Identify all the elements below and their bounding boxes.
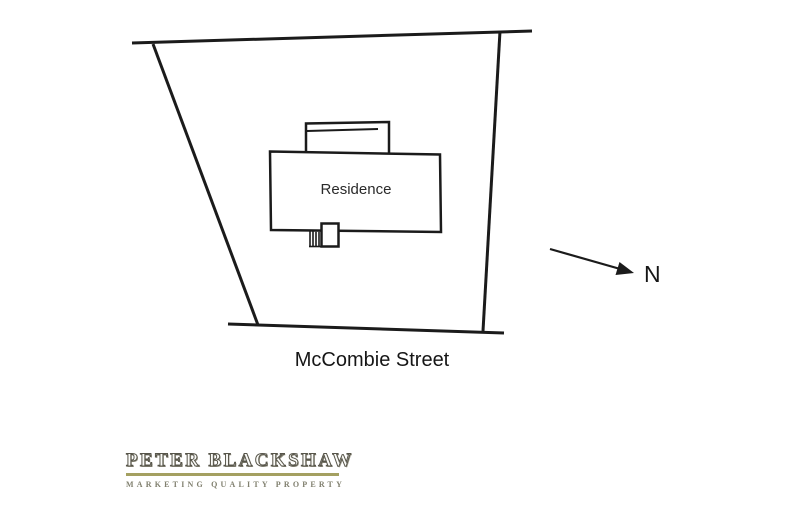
residence-label: Residence: [271, 181, 441, 198]
entry-steps: [309, 232, 322, 247]
agency-tagline: MARKETING QUALITY PROPERTY: [126, 480, 346, 489]
porch-outline: [322, 224, 339, 247]
boundary-line-left: [153, 44, 258, 325]
logo-underline: [126, 473, 339, 476]
garage-outline: [306, 122, 389, 154]
agency-name: PETER BLACKSHAW: [126, 451, 346, 471]
north-arrow-icon: [550, 249, 634, 275]
agency-logo: PETER BLACKSHAW MARKETING QUALITY PROPER…: [126, 451, 346, 489]
boundary-line-top: [132, 31, 532, 43]
garage-roof-line: [307, 129, 378, 131]
boundary-line-bottom: [228, 324, 504, 333]
site-plan-drawing: [0, 0, 790, 527]
street-label: McCombie Street: [239, 349, 505, 372]
site-plan-page: Residence McCombie Street N PETER BLACKS…: [0, 0, 790, 527]
north-label: N: [644, 261, 661, 288]
boundary-line-right: [483, 31, 500, 331]
